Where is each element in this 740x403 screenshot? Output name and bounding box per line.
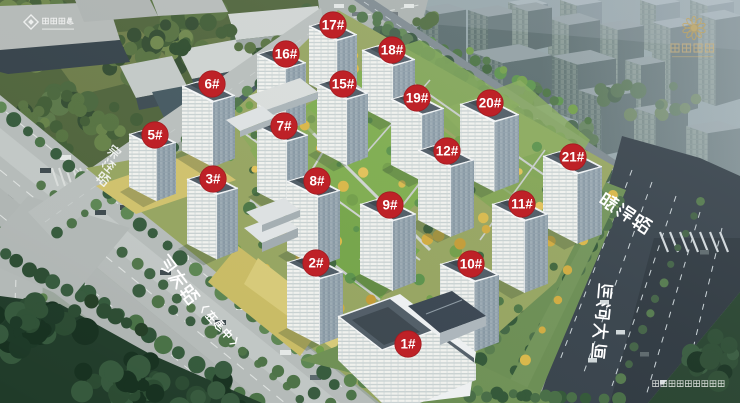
svg-text:17#: 17# <box>322 18 345 33</box>
svg-text:19#: 19# <box>406 91 429 106</box>
svg-text:2#: 2# <box>308 256 324 271</box>
svg-text:10#: 10# <box>460 257 483 272</box>
svg-text:18#: 18# <box>381 43 404 58</box>
svg-text:21#: 21# <box>562 150 585 165</box>
svg-text:15#: 15# <box>332 77 355 92</box>
svg-text:7#: 7# <box>276 119 292 134</box>
svg-text:5#: 5# <box>147 128 163 143</box>
svg-text:20#: 20# <box>479 96 502 111</box>
svg-text:6#: 6# <box>204 77 220 92</box>
svg-text:3#: 3# <box>205 172 221 187</box>
svg-text:9#: 9# <box>382 198 398 213</box>
svg-text:1#: 1# <box>400 337 416 352</box>
svg-text:16#: 16# <box>275 47 298 62</box>
svg-text:11#: 11# <box>511 197 533 212</box>
svg-text:12#: 12# <box>436 144 459 159</box>
svg-text:8#: 8# <box>309 174 325 189</box>
